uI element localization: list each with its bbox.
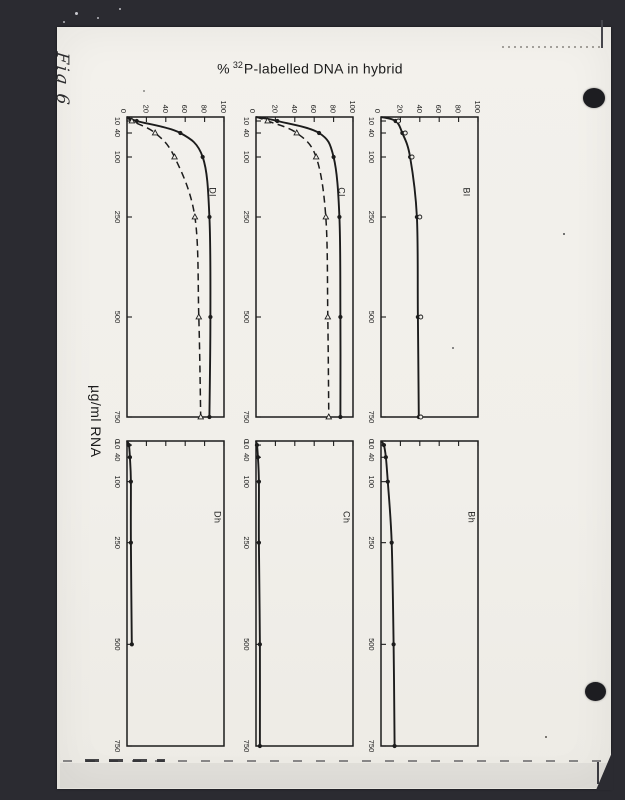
scan-smudge-line	[502, 46, 602, 48]
title-text: P-labelled DNA in hybrid	[244, 61, 403, 77]
dust-speck	[119, 8, 121, 10]
title-superscript: 32	[233, 60, 243, 70]
scan-edge-line	[601, 20, 603, 48]
x-axis-label: µg/ml RNA	[88, 385, 104, 457]
ink-speck	[143, 90, 145, 92]
dust-speck	[75, 12, 78, 15]
dust-speck	[63, 21, 65, 23]
ink-speck	[452, 347, 454, 349]
scanned-page	[57, 27, 611, 789]
punch-hole-top	[583, 88, 605, 108]
scan-dashed-line-dark	[85, 759, 165, 762]
ink-speck	[563, 233, 565, 235]
fig-number-handwritten: Fig 6	[52, 51, 72, 107]
punch-hole-bottom	[585, 682, 606, 701]
chart-title: %32P-labelled DNA in hybrid	[185, 60, 435, 77]
page-bottom-shade	[60, 763, 608, 788]
scan-edge-line-bottom	[597, 762, 599, 784]
dust-speck	[97, 17, 99, 19]
ink-speck	[545, 736, 547, 738]
title-percent: %	[217, 61, 230, 77]
